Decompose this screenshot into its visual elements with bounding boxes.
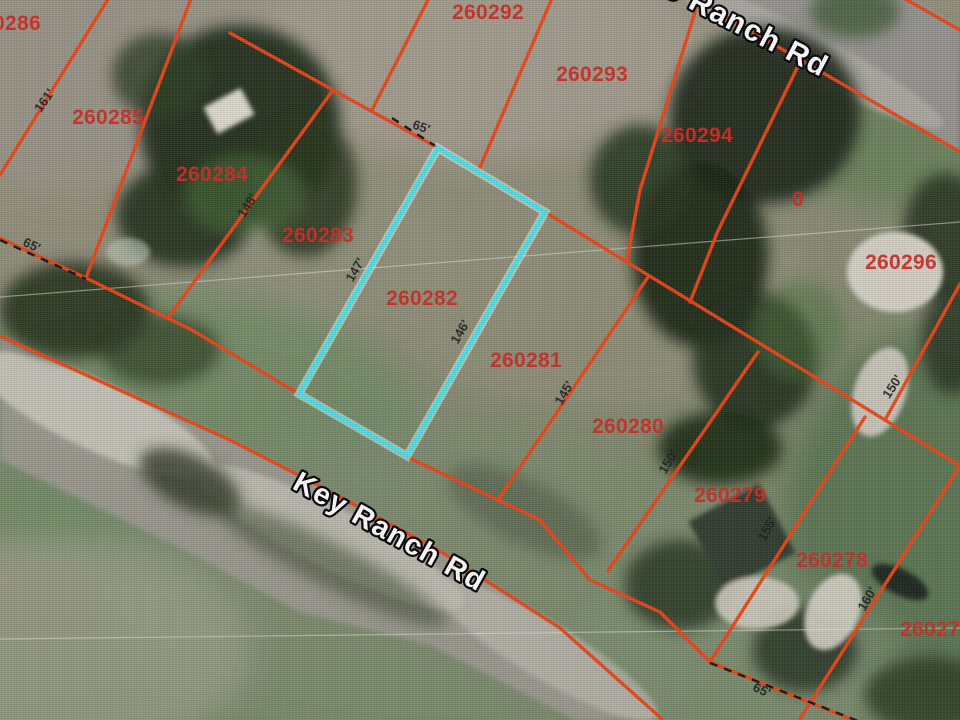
parcel-number-label: 0	[792, 188, 804, 211]
parcel-number-label: 260278	[796, 549, 868, 572]
parcel-number-label: 260280	[592, 415, 664, 438]
parcel-number-label: 260277	[900, 618, 960, 641]
map-canvas[interactable]: 161'148'147'146'145'150'155'160'150'65'6…	[0, 0, 960, 720]
parcel-number-label: 260284	[176, 163, 248, 186]
parcel-number-label: 260292	[452, 1, 524, 24]
parcel-number-label: 260282	[386, 287, 458, 310]
parcel-number-label: 260283	[282, 224, 354, 247]
parcel-number-label: 260281	[490, 349, 562, 372]
parcel-map-screenshot: 161'148'147'146'145'150'155'160'150'65'6…	[0, 0, 960, 720]
map-svg: 161'148'147'146'145'150'155'160'150'65'6…	[0, 0, 960, 720]
parcel-number-label: 260285	[72, 106, 144, 129]
parcel-number-label: 260286	[0, 12, 41, 35]
parcel-number-label: 260293	[556, 63, 628, 86]
parcel-number-label: 260279	[694, 484, 766, 507]
parcel-number-label: 260294	[661, 124, 733, 147]
parcel-number-label: 260296	[865, 251, 937, 274]
